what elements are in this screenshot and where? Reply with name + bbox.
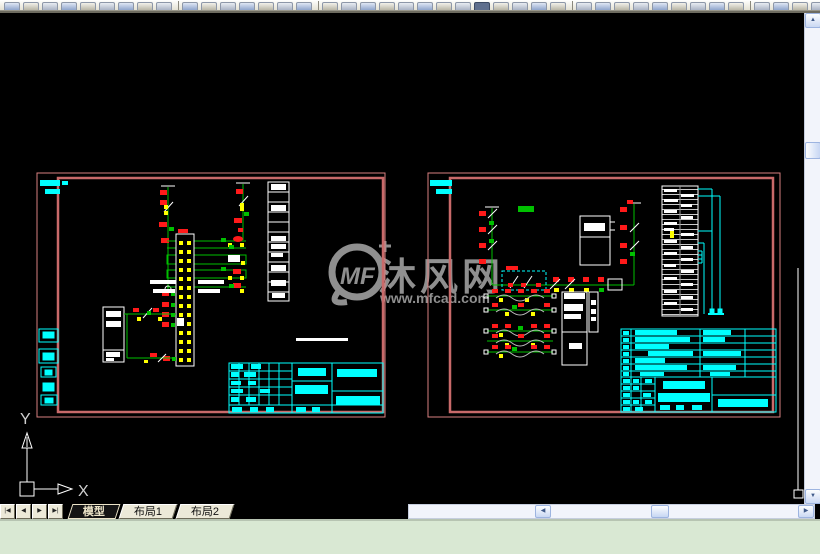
vscroll-thumb[interactable] (805, 142, 820, 159)
toolbar-icon[interactable] (690, 2, 706, 10)
toolbar-icon[interactable] (398, 2, 414, 10)
toolbar-icon[interactable] (99, 2, 115, 10)
right-terminal-strip (662, 186, 698, 316)
toolbar-icon[interactable] (773, 2, 789, 10)
toolbar-icon[interactable] (220, 2, 236, 10)
tab-model[interactable]: 模型 (68, 504, 121, 519)
toolbar-separator (572, 1, 573, 10)
layout-tab-bar: |◀ ◀ ▶ ▶| 模型布局1布局2 (0, 504, 408, 519)
toolbar-icon[interactable] (296, 2, 312, 10)
toolbar-icon[interactable] (322, 2, 338, 10)
horizontal-scrollbar[interactable]: ◀ ▶ (408, 504, 815, 519)
toolbar-icon[interactable] (360, 2, 376, 10)
toolbar-separator (318, 1, 319, 10)
toolbar-icon[interactable] (277, 2, 293, 10)
strip-wiring (698, 189, 724, 314)
toolbar-icon[interactable] (811, 2, 820, 10)
legend-strip (268, 182, 289, 301)
hscroll-thumb[interactable] (651, 505, 669, 518)
watermark: MF 沐风网 www.mfcad.com (332, 241, 504, 306)
hscroll-track[interactable] (551, 505, 798, 518)
toolbar-icon[interactable] (550, 2, 566, 10)
toolbar-icon[interactable] (201, 2, 217, 10)
watermark-logo-text: MF (340, 263, 376, 290)
watermark-site-url: www.mfcad.com (379, 290, 490, 306)
vertical-scrollbar[interactable]: ▲ ▼ (804, 13, 820, 504)
toolbar-separator (750, 1, 751, 10)
hscroll-right-button[interactable]: ▶ (798, 505, 814, 518)
toolbar-icon[interactable] (341, 2, 357, 10)
layout-tabs: 模型布局1布局2 (70, 504, 235, 519)
toolbar-icon[interactable] (633, 2, 649, 10)
toolbar-icon[interactable] (512, 2, 528, 10)
drawn-line (794, 268, 803, 498)
relay-box (103, 307, 124, 362)
feeder-line-b (234, 183, 250, 240)
drawing-canvas[interactable]: MF 沐风网 www.mfcad.com (0, 13, 804, 504)
left-terminal-strip (162, 229, 194, 366)
toolbar-icon[interactable] (23, 2, 39, 10)
top-toolbar[interactable] (0, 0, 820, 11)
hscroll-lead-track[interactable] (409, 505, 535, 518)
toolbar-icon[interactable] (239, 2, 255, 10)
hscroll-left-button[interactable]: ◀ (535, 505, 551, 518)
toolbar-icon[interactable] (614, 2, 630, 10)
autocad-window: MF 沐风网 www.mfcad.com (0, 0, 820, 554)
panel-boxes (562, 292, 598, 365)
toolbar-icon[interactable] (709, 2, 725, 10)
tab-layout1[interactable]: 布局1 (119, 504, 178, 519)
instrument-box (580, 216, 615, 265)
toolbar-icon[interactable] (4, 2, 20, 10)
tab-nav-prev-button[interactable]: ◀ (16, 504, 31, 519)
toolbar-icon[interactable] (671, 2, 687, 10)
tab-layout2[interactable]: 布局2 (176, 504, 235, 519)
ucs-x-label: X (78, 483, 89, 500)
tab-nav-first-button[interactable]: |◀ (0, 504, 15, 519)
model-space: MF 沐风网 www.mfcad.com (0, 13, 804, 504)
toolbar-icon[interactable] (595, 2, 611, 10)
left-margin-blocks (39, 329, 58, 405)
toolbar-icon[interactable] (118, 2, 134, 10)
toolbar-icon[interactable] (137, 2, 153, 10)
left-drawing-label (40, 180, 68, 194)
toolbar-icon[interactable] (728, 2, 744, 10)
ucs-icon: Y X (20, 411, 89, 500)
tab-nav-last-button[interactable]: ▶| (48, 504, 63, 519)
toolbar-icon[interactable] (436, 2, 452, 10)
toolbar-icon[interactable] (792, 2, 808, 10)
toolbar-icon[interactable] (258, 2, 274, 10)
toolbar-icon[interactable] (379, 2, 395, 10)
control-rows (484, 289, 556, 358)
toolbar-icon[interactable] (80, 2, 96, 10)
toolbar-icon[interactable] (156, 2, 172, 10)
toolbar-icon[interactable] (576, 2, 592, 10)
toolbar-icon[interactable] (182, 2, 198, 10)
tab-nav-next-button[interactable]: ▶ (32, 504, 47, 519)
command-line[interactable]: AD 菜单实用程序已加载。 esk DWG。 此文件上次由 Autodesk 应… (0, 519, 820, 554)
toolbar-icon[interactable] (61, 2, 77, 10)
vscroll-up-button[interactable]: ▲ (805, 13, 820, 28)
right-titleblock (621, 329, 776, 412)
toolbar-separator (178, 1, 179, 10)
ucs-y-label: Y (20, 411, 31, 428)
toolbar-icon[interactable] (417, 2, 433, 10)
toolbar-icon[interactable] (493, 2, 509, 10)
toolbar-icon[interactable] (455, 2, 471, 10)
vscroll-down-button[interactable]: ▼ (805, 489, 820, 504)
toolbar-icon[interactable] (754, 2, 770, 10)
toolbar-icon[interactable] (42, 2, 58, 10)
vscroll-track[interactable] (805, 28, 820, 489)
toolbar-icon[interactable] (652, 2, 668, 10)
toolbar-icon[interactable] (474, 2, 490, 10)
right-drawing-label (430, 180, 452, 194)
left-titleblock (229, 363, 383, 413)
toolbar-icon[interactable] (531, 2, 547, 10)
